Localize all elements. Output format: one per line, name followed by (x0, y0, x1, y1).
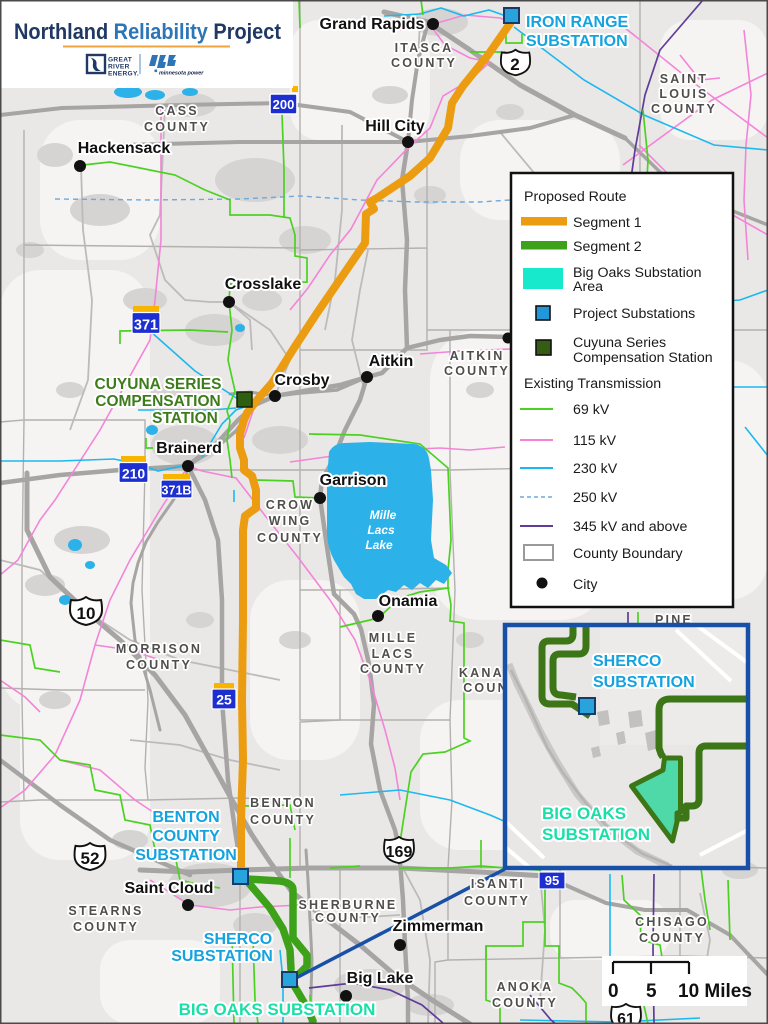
svg-text:ENERGY.: ENERGY. (108, 71, 139, 78)
svg-text:SUBSTATION: SUBSTATION (593, 674, 695, 691)
svg-text:95: 95 (545, 873, 559, 888)
svg-text:SHERCO: SHERCO (593, 653, 661, 670)
svg-text:345 kV and above: 345 kV and above (573, 519, 687, 535)
svg-text:LOUIS: LOUIS (659, 87, 708, 101)
svg-text:0: 0 (608, 981, 619, 1002)
svg-text:Northland Reliability Project: Northland Reliability Project (14, 19, 282, 44)
svg-text:City: City (573, 577, 598, 593)
svg-text:Crosby: Crosby (274, 372, 329, 389)
svg-text:COUNTY: COUNTY (391, 56, 457, 70)
svg-text:SUBSTATION: SUBSTATION (135, 847, 237, 864)
svg-text:COUNTY: COUNTY (315, 911, 381, 925)
svg-text:ANOKA: ANOKA (497, 980, 554, 994)
svg-text:Crosslake: Crosslake (225, 276, 302, 293)
svg-text:371B: 371B (162, 484, 192, 498)
svg-text:210: 210 (122, 466, 146, 482)
svg-text:200: 200 (273, 97, 295, 112)
svg-text:BENTON: BENTON (250, 796, 316, 810)
svg-text:MILLE: MILLE (369, 631, 418, 645)
svg-text:COUNTY: COUNTY (464, 894, 530, 908)
svg-text:Compensation Station: Compensation Station (573, 350, 713, 366)
svg-text:Aitkin: Aitkin (369, 353, 413, 370)
svg-text:COUNTY: COUNTY (152, 828, 220, 845)
svg-text:Mille: Mille (370, 508, 397, 522)
svg-text:61: 61 (617, 1011, 635, 1024)
svg-text:SHERCO: SHERCO (204, 931, 272, 948)
svg-text:Lake: Lake (365, 538, 393, 552)
svg-text:Existing Transmission: Existing Transmission (524, 376, 661, 392)
svg-text:Garrison: Garrison (320, 472, 387, 489)
svg-text:Cuyuna Series: Cuyuna Series (573, 335, 666, 351)
svg-text:SUBSTATION: SUBSTATION (542, 825, 650, 844)
svg-text:COUN: COUN (463, 681, 509, 695)
svg-text:COUNTY: COUNTY (73, 920, 139, 934)
svg-text:Proposed Route: Proposed Route (524, 189, 627, 205)
svg-text:AITKIN: AITKIN (450, 349, 505, 363)
svg-text:COUNTY: COUNTY (651, 102, 717, 116)
svg-text:10 Miles: 10 Miles (678, 981, 752, 1002)
svg-text:5: 5 (646, 981, 657, 1002)
svg-text:COUNTY: COUNTY (639, 931, 705, 945)
svg-text:County Boundary: County Boundary (573, 546, 684, 562)
svg-text:GREAT: GREAT (108, 57, 132, 64)
svg-text:2: 2 (510, 55, 519, 74)
svg-text:25: 25 (216, 692, 232, 708)
svg-text:Lacs: Lacs (367, 523, 395, 537)
svg-text:COUNTY: COUNTY (492, 996, 558, 1010)
svg-text:Segment 2: Segment 2 (573, 239, 642, 255)
svg-text:230 kV: 230 kV (573, 461, 618, 477)
svg-text:STATION: STATION (152, 410, 218, 427)
svg-text:371: 371 (134, 318, 158, 334)
svg-text:BENTON: BENTON (152, 809, 219, 826)
svg-text:ITASCA: ITASCA (395, 41, 454, 55)
svg-text:MORRISON: MORRISON (116, 642, 202, 656)
svg-text:COUNTY: COUNTY (360, 662, 426, 676)
svg-text:CROW: CROW (266, 498, 314, 512)
svg-text:minnesota power: minnesota power (159, 71, 204, 77)
svg-text:ISANTI: ISANTI (471, 877, 525, 891)
svg-text:IRON RANGE: IRON RANGE (526, 14, 629, 31)
svg-text:CASS: CASS (155, 104, 199, 118)
svg-text:RIVER: RIVER (108, 64, 130, 71)
svg-text:COUNTY: COUNTY (144, 120, 210, 134)
svg-text:10: 10 (77, 604, 96, 623)
svg-text:Saint Cloud: Saint Cloud (125, 880, 214, 897)
svg-text:STEARNS: STEARNS (68, 904, 143, 918)
svg-text:115 kV: 115 kV (573, 433, 617, 449)
svg-text:Zimmerman: Zimmerman (393, 918, 484, 935)
svg-text:SAINT: SAINT (660, 72, 709, 86)
svg-text:Grand Rapids: Grand Rapids (320, 16, 425, 33)
svg-text:Onamia: Onamia (379, 593, 438, 610)
svg-text:COUNTY: COUNTY (250, 813, 316, 827)
svg-text:52: 52 (81, 849, 100, 868)
svg-text:COUNTY: COUNTY (257, 531, 323, 545)
svg-text:169: 169 (386, 844, 413, 861)
svg-text:Hackensack: Hackensack (78, 140, 171, 157)
svg-text:Area: Area (573, 279, 603, 295)
svg-text:SHERBURNE: SHERBURNE (299, 898, 398, 912)
svg-text:COMPENSATION: COMPENSATION (95, 393, 220, 410)
svg-text:Brainerd: Brainerd (156, 440, 222, 457)
svg-text:250 kV: 250 kV (573, 490, 618, 506)
svg-text:SUBSTATION: SUBSTATION (526, 33, 628, 50)
svg-text:BIG OAKS: BIG OAKS (542, 804, 626, 823)
svg-text:SUBSTATION: SUBSTATION (171, 948, 273, 965)
svg-text:WING: WING (269, 514, 312, 528)
svg-text:COUNTY: COUNTY (444, 364, 510, 378)
svg-text:Project Substations: Project Substations (573, 306, 695, 322)
svg-text:CUYUNA SERIES: CUYUNA SERIES (95, 376, 222, 393)
svg-text:69 kV: 69 kV (573, 402, 610, 418)
svg-text:LACS: LACS (372, 647, 415, 661)
svg-text:CHISAGO: CHISAGO (635, 915, 709, 929)
svg-text:COUNTY: COUNTY (126, 658, 192, 672)
svg-text:Segment 1: Segment 1 (573, 215, 642, 231)
svg-text:BIG OAKS SUBSTATION: BIG OAKS SUBSTATION (179, 1000, 376, 1019)
svg-text:Big Lake: Big Lake (347, 970, 414, 987)
svg-text:Hill City: Hill City (365, 118, 425, 135)
